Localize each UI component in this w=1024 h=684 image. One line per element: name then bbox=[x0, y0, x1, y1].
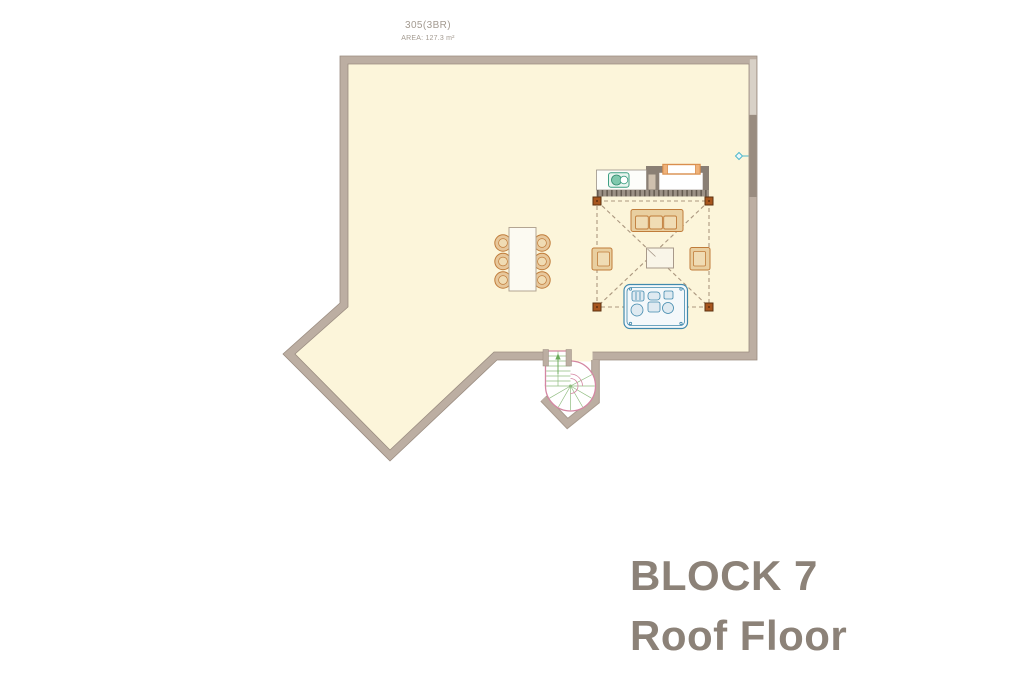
hot-tub-seat bbox=[664, 291, 673, 299]
stair-jamb bbox=[543, 350, 549, 367]
hot-tub-lounger bbox=[648, 292, 660, 300]
right-wall-light-segment bbox=[750, 59, 757, 115]
stair-jamb bbox=[566, 350, 572, 367]
right-wall-dark-segment bbox=[750, 115, 757, 197]
kitchen-bench bbox=[663, 165, 700, 175]
sink-icon bbox=[609, 173, 630, 187]
coffee-table bbox=[647, 248, 674, 268]
floor-plan-drawing bbox=[0, 0, 1024, 684]
plan-title-floor: Roof Floor bbox=[630, 606, 847, 666]
hot-tub-seat bbox=[663, 303, 674, 314]
unit-area-label: AREA: 127.3 m² bbox=[401, 35, 454, 42]
floor-plan-page: 305(3BR) AREA: 127.3 m² BLOCK 7 Roof Flo… bbox=[0, 0, 1024, 684]
plan-title-block: BLOCK 7 bbox=[630, 546, 847, 606]
sofa bbox=[631, 210, 683, 232]
spiral-stair bbox=[543, 350, 596, 424]
armchair-left bbox=[592, 248, 612, 270]
counter-hatched-edge bbox=[597, 190, 710, 197]
armchair-right bbox=[690, 248, 710, 271]
grill-counter-interior bbox=[659, 173, 703, 191]
hot-tub-lounger bbox=[648, 302, 660, 312]
plan-title: BLOCK 7 Roof Floor bbox=[630, 546, 847, 666]
dining-table bbox=[509, 228, 536, 292]
counter-shelf bbox=[649, 175, 656, 190]
unit-number-label: 305(3BR) bbox=[405, 20, 451, 31]
hot-tub-seat bbox=[632, 291, 644, 301]
dining-set bbox=[495, 228, 550, 292]
hot-tub-seat bbox=[631, 304, 643, 316]
hot-tub bbox=[624, 285, 688, 329]
